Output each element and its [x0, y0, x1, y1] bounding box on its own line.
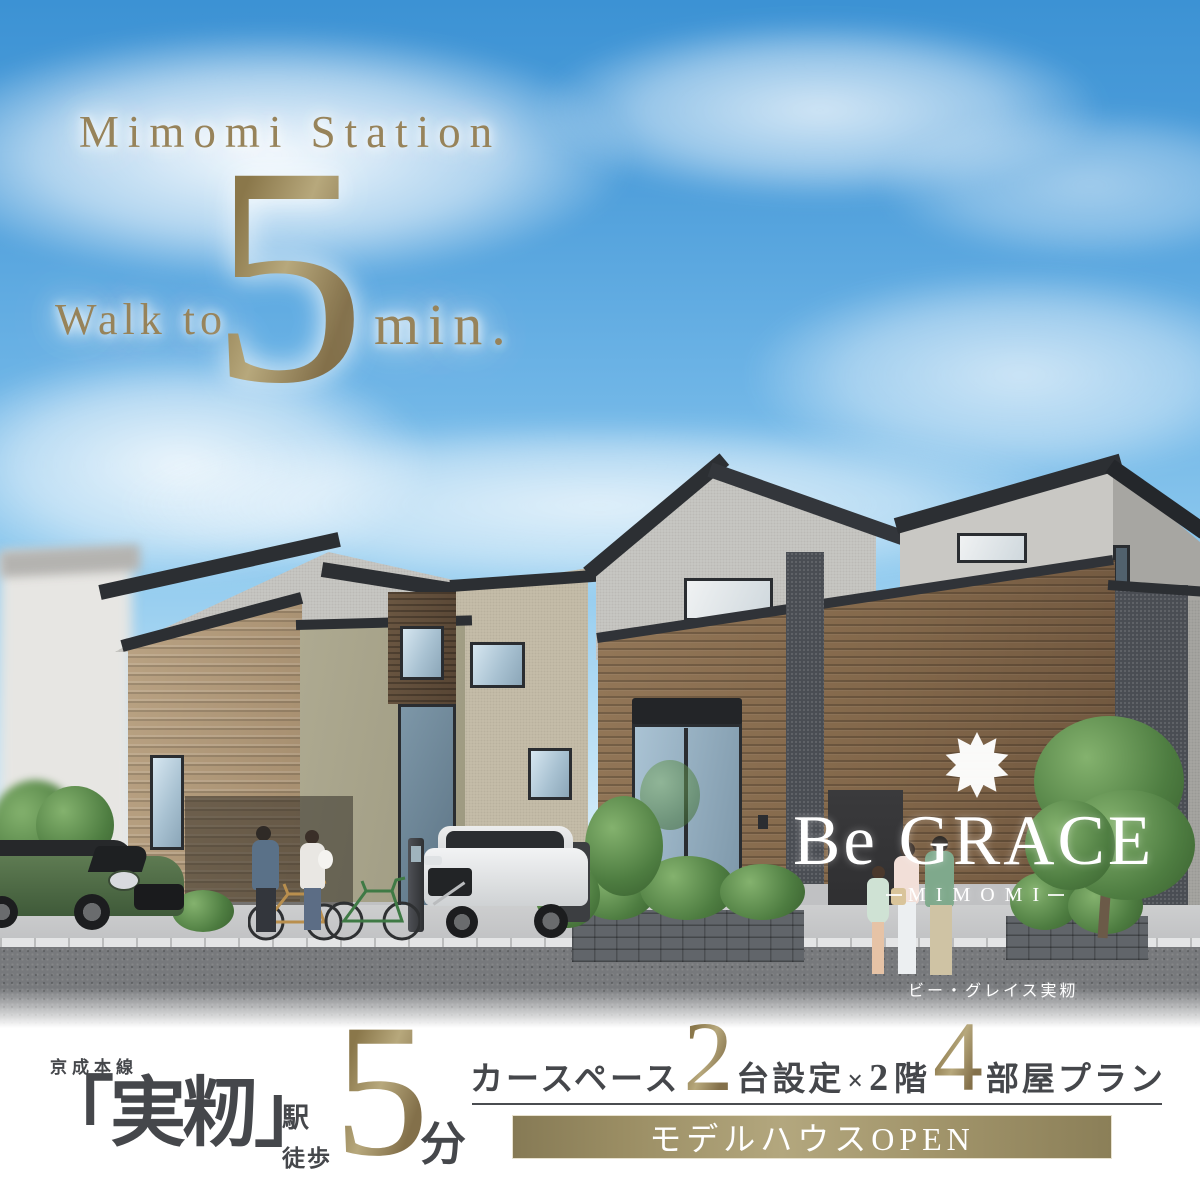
person-woman-head [305, 830, 319, 844]
station-word: 駅 [282, 1096, 332, 1135]
mini-car-wheel [74, 894, 110, 930]
left-house-window [528, 748, 572, 800]
person-girl-legs [872, 922, 884, 974]
volvo-headlight [424, 856, 442, 865]
plan-times-sign: × [847, 1066, 866, 1098]
minutes-number: 5 [334, 1014, 429, 1170]
plan-number-small: 2 [869, 1056, 891, 1100]
person-man-torso [252, 840, 279, 890]
brand-location-text: MIMOMI [908, 884, 1049, 907]
logo-dash-left [886, 894, 902, 896]
plan-text-row: カースペース 2 台設定 × 2 階 4 部屋プラン [470, 1016, 1166, 1100]
hero-minutes-unit: min. [374, 291, 515, 358]
hero-five-number: 5 [210, 148, 366, 404]
model-house-banner-text: モデルハウスOPEN [649, 1114, 975, 1160]
handbag [891, 888, 906, 905]
left-house-tower-window [400, 626, 444, 680]
station-walk-block: 駅 徒歩 [282, 1096, 332, 1173]
divider-line [472, 1103, 1162, 1105]
volvo-wheel [446, 906, 478, 938]
plan-number-gold: 2 [683, 1016, 733, 1098]
plan-text: カースペース [470, 1052, 680, 1100]
main-house-right-edge [1188, 600, 1200, 950]
advertisement-poster: Be GRACE MIMOMI ビー・グレイス実籾 Mimomi Station… [0, 0, 1200, 1200]
walk-word: 徒歩 [282, 1139, 332, 1173]
left-house-window [470, 642, 525, 688]
person-man-legs [256, 888, 276, 932]
left-house-narrow-window [150, 755, 184, 850]
person-man-head [256, 826, 271, 841]
person-father-pants [930, 905, 952, 975]
mini-car-grille [134, 884, 184, 910]
plan-text: 台設定 [736, 1052, 844, 1100]
person-mother-pants [898, 902, 916, 974]
brand-reading-text: ビー・グレイス実籾 [908, 977, 1079, 1001]
model-house-banner: モデルハウスOPEN [512, 1115, 1112, 1159]
hero-walk-prefix: Walk to [55, 294, 227, 345]
hero-big-five: 5 5 [210, 148, 380, 428]
logo-dash-right [1048, 894, 1064, 896]
brand-logo-text: Be GRACE [793, 806, 1154, 877]
plan-number-gold: 4 [933, 1016, 983, 1098]
minutes-unit: 分 [420, 1108, 466, 1174]
ev-post-panel [411, 846, 421, 862]
diamond-ornament-icon [941, 729, 1013, 801]
plan-text: 階 [894, 1052, 930, 1100]
person-woman-legs [304, 888, 321, 930]
wall-sconce [758, 815, 768, 829]
mini-car-windshield [88, 846, 150, 872]
main-house-shutter-box [632, 698, 742, 726]
main-house-corner-window [957, 533, 1027, 563]
baby [318, 850, 333, 869]
volvo-wheel [534, 904, 568, 938]
person-girl-dress [867, 878, 889, 924]
plan-text: 部屋プラン [986, 1052, 1166, 1100]
